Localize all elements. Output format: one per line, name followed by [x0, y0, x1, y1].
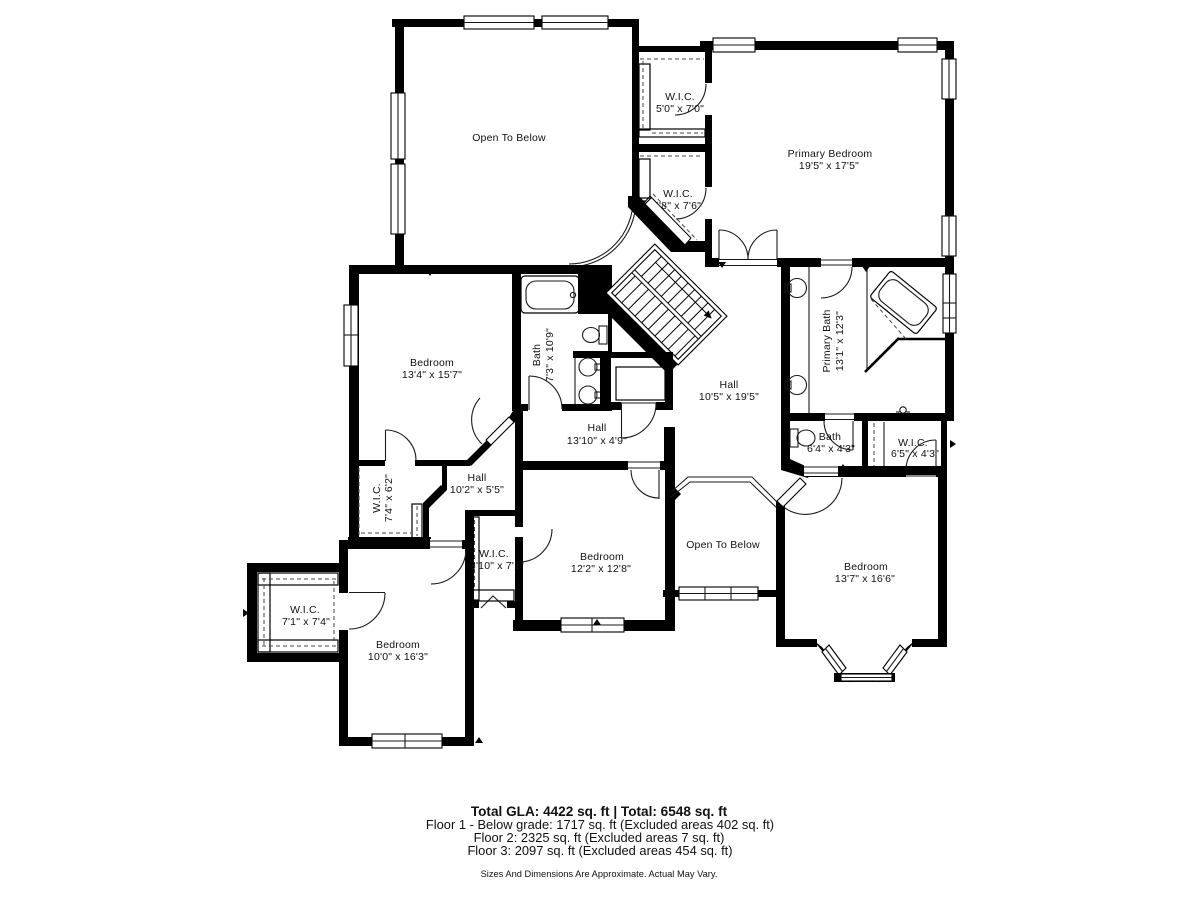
svg-text:Bath: Bath: [531, 344, 543, 366]
svg-text:Floor 3: 2097 sq. ft (Excluded: Floor 3: 2097 sq. ft (Excluded areas 454…: [467, 843, 732, 858]
svg-text:Bedroom: Bedroom: [580, 551, 624, 563]
svg-text:3'10" x 7'1": 3'10" x 7'1": [470, 560, 524, 572]
svg-text:5'0" x 7'0": 5'0" x 7'0": [656, 103, 704, 115]
svg-text:W.I.C.: W.I.C.: [663, 188, 693, 200]
svg-text:13'7" x 16'6": 13'7" x 16'6": [835, 573, 895, 585]
svg-text:10'2" x 5'5": 10'2" x 5'5": [450, 484, 504, 496]
svg-text:Bedroom: Bedroom: [376, 639, 420, 651]
svg-text:W.I.C.: W.I.C.: [479, 548, 509, 560]
svg-text:Hall: Hall: [588, 422, 607, 434]
svg-text:10'5" x 19'5": 10'5" x 19'5": [699, 391, 759, 403]
svg-text:7'4" x 6'2": 7'4" x 6'2": [383, 474, 395, 522]
svg-text:7'3" x 10'9": 7'3" x 10'9": [544, 328, 556, 382]
svg-text:Sizes And Dimensions Are Appro: Sizes And Dimensions Are Approximate. Ac…: [481, 869, 718, 879]
svg-text:Hall: Hall: [720, 379, 739, 391]
svg-text:Bath: Bath: [819, 431, 841, 443]
svg-text:Bedroom: Bedroom: [410, 357, 454, 369]
svg-text:13'1" x 12'3": 13'1" x 12'3": [834, 311, 846, 371]
svg-text:19'5" x 17'5": 19'5" x 17'5": [799, 160, 859, 172]
svg-text:6'4" x 4'3": 6'4" x 4'3": [807, 443, 855, 455]
svg-text:13'10" x 4'9": 13'10" x 4'9": [567, 435, 627, 447]
svg-text:Bedroom: Bedroom: [844, 561, 888, 573]
svg-text:Primary Bedroom: Primary Bedroom: [788, 148, 873, 160]
svg-text:Open To Below: Open To Below: [472, 132, 546, 144]
svg-text:W.I.C.: W.I.C.: [290, 604, 320, 616]
svg-text:13'4" x 15'7": 13'4" x 15'7": [402, 369, 462, 381]
svg-text:W.I.C.: W.I.C.: [665, 91, 695, 103]
svg-text:Open To Below: Open To Below: [686, 539, 760, 551]
svg-text:W.I.C.: W.I.C.: [371, 483, 383, 513]
svg-text:Primary Bath: Primary Bath: [821, 309, 833, 372]
svg-text:12'2" x 12'8": 12'2" x 12'8": [571, 563, 631, 575]
svg-text:10'0" x 16'3": 10'0" x 16'3": [368, 651, 428, 663]
svg-text:Hall: Hall: [468, 472, 487, 484]
svg-text:6'5" x 4'3": 6'5" x 4'3": [891, 448, 939, 460]
svg-text:7'1" x 7'4": 7'1" x 7'4": [282, 616, 330, 628]
